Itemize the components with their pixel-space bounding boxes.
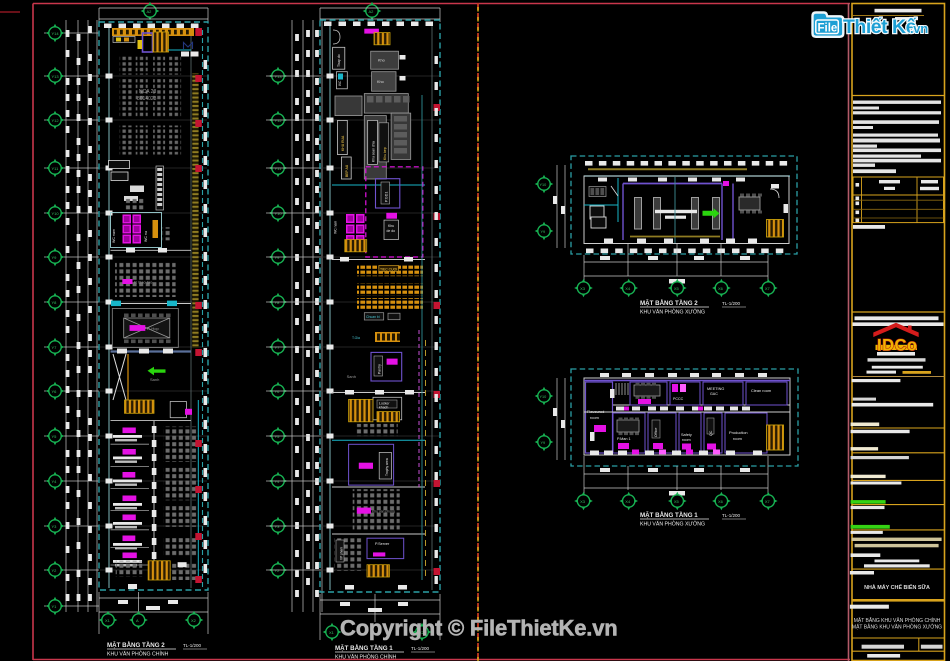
svg-text:Khu bep: Khu bep: [383, 147, 387, 160]
svg-text:Y10: Y10: [275, 211, 283, 216]
svg-text:X4: X4: [625, 499, 631, 504]
svg-text:Y9: Y9: [52, 255, 58, 260]
svg-text:MẶT BẰNG KHU VĂN PHÒNG CHÍNH: MẶT BẰNG KHU VĂN PHÒNG CHÍNH: [854, 616, 941, 624]
svg-text:KHU VĂN PHÒNG XƯỞNG: KHU VĂN PHÒNG XƯỞNG: [640, 521, 705, 528]
svg-text:TIEC CUOI: TIEC CUOI: [380, 267, 397, 271]
svg-text:Copyright © FileThietKe.vn: Copyright © FileThietKe.vn: [340, 616, 617, 641]
svg-text:MẶT BẰNG TẦNG 1: MẶT BẰNG TẦNG 1: [640, 511, 698, 519]
svg-text:Khu van phong: Khu van phong: [372, 510, 395, 514]
svg-text:WC: WC: [338, 80, 342, 86]
svg-text:Y5: Y5: [52, 434, 58, 439]
svg-text:QC: QC: [709, 430, 713, 436]
svg-text:X3: X3: [580, 286, 586, 291]
svg-text:Y5: Y5: [275, 434, 281, 439]
svg-text:.vn: .vn: [910, 21, 928, 36]
svg-text:Y8: Y8: [275, 300, 281, 305]
svg-text:KHU RUA: KHU RUA: [341, 135, 345, 151]
svg-text:MẶT BẰNG TẦNG 2: MẶT BẰNG TẦNG 2: [107, 641, 165, 649]
svg-text:Kho: Kho: [378, 59, 385, 63]
svg-text:P. Hop: P. Hop: [147, 326, 159, 331]
svg-text:MẶT BẰNG TẦNG 2: MẶT BẰNG TẦNG 2: [640, 299, 698, 307]
svg-text:Y3: Y3: [52, 524, 58, 529]
svg-text:Clean room: Clean room: [751, 388, 771, 393]
svg-text:MEETING: MEETING: [707, 387, 724, 391]
svg-text:MẶT BẰNG KHU VĂN PHÒNG XƯỞNG: MẶT BẰNG KHU VĂN PHÒNG XƯỞNG: [852, 622, 942, 630]
svg-text:WC nam: WC nam: [334, 221, 338, 234]
svg-text:Y10: Y10: [540, 183, 547, 187]
svg-text:X1: X1: [329, 630, 335, 635]
svg-text:Y13: Y13: [52, 74, 60, 79]
svg-text:PCCC: PCCC: [673, 397, 684, 401]
svg-text:Y12: Y12: [275, 118, 283, 123]
svg-text:Y9: Y9: [541, 441, 546, 445]
svg-text:Y7: Y7: [52, 345, 58, 350]
svg-text:Y11: Y11: [275, 166, 283, 171]
svg-text:Chuan bi: Chuan bi: [366, 315, 380, 319]
svg-text:Y1: Y1: [52, 604, 58, 609]
svg-text:KHU VĂN PHÒNG XƯỞNG: KHU VĂN PHÒNG XƯỞNG: [640, 309, 705, 316]
svg-text:Office: Office: [654, 428, 658, 437]
svg-text:A2: A2: [369, 9, 375, 14]
svg-text:Y4: Y4: [275, 479, 281, 484]
svg-text:VP pham: VP pham: [340, 547, 344, 560]
svg-text:BEP AU: BEP AU: [345, 164, 349, 177]
svg-text:Thiết Kế: Thiết Kế: [843, 16, 917, 38]
svg-text:Khu: Khu: [388, 224, 394, 228]
svg-text:WC nu: WC nu: [144, 231, 148, 242]
svg-text:TL-1/200: TL-1/200: [411, 646, 430, 651]
svg-text:P.Man 1: P.Man 1: [617, 437, 631, 441]
svg-text:T.Gia: T.Gia: [352, 336, 360, 340]
svg-text:TL-1/200: TL-1/200: [183, 643, 202, 648]
svg-text:IDCo: IDCo: [877, 337, 918, 355]
svg-text:Y9: Y9: [541, 230, 546, 234]
svg-text:KHU VĂN PHÒNG CHÍNH: KHU VĂN PHÒNG CHÍNH: [107, 651, 169, 658]
svg-text:X3: X3: [580, 499, 586, 504]
svg-text:A2: A2: [147, 9, 153, 14]
svg-text:TL-1/200: TL-1/200: [722, 513, 741, 518]
svg-text:de do: de do: [387, 229, 396, 233]
svg-text:KHU VĂN PHÒNG CHÍNH: KHU VĂN PHÒNG CHÍNH: [335, 654, 397, 661]
svg-text:X6: X6: [718, 286, 724, 291]
svg-text:X7: X7: [765, 499, 771, 504]
svg-text:8014023: 8014023: [137, 96, 157, 102]
svg-text:Sanh: Sanh: [347, 374, 356, 379]
svg-text:Y2: Y2: [275, 568, 281, 573]
svg-text:room: room: [733, 436, 742, 441]
svg-text:Y7: Y7: [275, 345, 281, 350]
svg-text:Safety: Safety: [681, 433, 692, 437]
svg-text:Y6: Y6: [52, 389, 58, 394]
svg-text:File: File: [818, 22, 838, 34]
svg-text:X7: X7: [765, 286, 771, 291]
svg-text:Sanh: Sanh: [150, 377, 159, 382]
svg-text:Y9: Y9: [275, 255, 281, 260]
svg-text:Y13: Y13: [275, 74, 283, 79]
svg-text:Y11: Y11: [52, 166, 60, 171]
svg-text:WC nam: WC nam: [112, 229, 116, 243]
svg-text:Y3: Y3: [275, 524, 281, 529]
svg-text:X2: X2: [191, 618, 197, 623]
svg-text:Y4: Y4: [52, 479, 58, 484]
svg-text:P.GD1: P.GD1: [385, 192, 389, 202]
svg-text:Y12: Y12: [52, 118, 60, 123]
svg-text:Trophy area: Trophy area: [385, 458, 389, 476]
svg-text:NHÀ MÁY CHẾ BIẾN SỮA: NHÀ MÁY CHẾ BIẾN SỮA: [864, 584, 930, 591]
svg-text:Khu soan chia: Khu soan chia: [372, 141, 376, 162]
svg-text:Y8: Y8: [52, 300, 58, 305]
svg-text:NCA 23: NCA 23: [139, 89, 156, 95]
svg-text:Production: Production: [729, 430, 748, 435]
svg-text:Y10: Y10: [52, 211, 60, 216]
svg-text:P.Server: P.Server: [375, 542, 390, 546]
svg-text:A: A: [136, 618, 139, 623]
svg-text:X1: X1: [105, 618, 111, 623]
svg-text:Y6: Y6: [275, 389, 281, 394]
svg-text:Pantry: Pantry: [378, 364, 382, 374]
svg-text:Thay do: Thay do: [337, 54, 341, 67]
svg-text:Kho: Kho: [377, 80, 384, 84]
svg-text:X4: X4: [625, 286, 631, 291]
svg-text:Y2: Y2: [52, 568, 58, 573]
svg-text:khach: khach: [379, 406, 388, 410]
svg-text:P. Dao tao: P. Dao tao: [134, 280, 153, 285]
svg-text:MẶT BẰNG TẦNG 1: MẶT BẰNG TẦNG 1: [335, 644, 393, 652]
svg-text:GAC: GAC: [710, 392, 718, 396]
svg-text:Y14: Y14: [52, 31, 60, 36]
svg-text:TL-1/200: TL-1/200: [722, 301, 741, 306]
svg-text:room: room: [590, 415, 599, 420]
svg-text:X5: X5: [674, 499, 680, 504]
svg-text:X5: X5: [674, 286, 680, 291]
svg-text:Flavoured: Flavoured: [587, 409, 604, 414]
svg-text:X6: X6: [718, 499, 724, 504]
svg-text:Y10: Y10: [540, 395, 547, 399]
svg-text:room: room: [682, 438, 691, 442]
